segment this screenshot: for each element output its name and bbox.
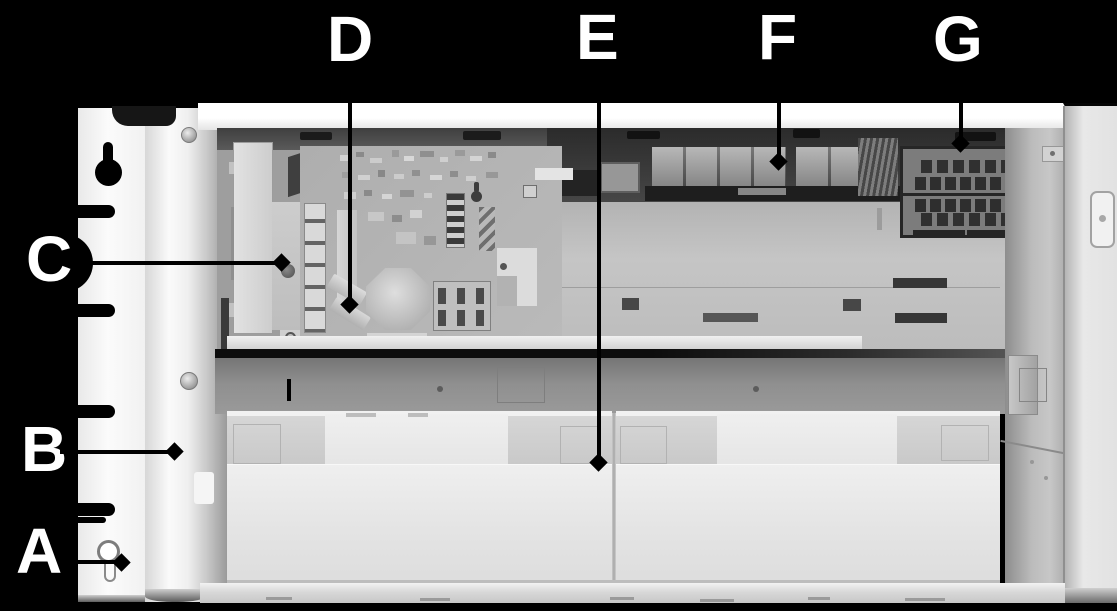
leader-line-g [959,70,963,139]
leader-line-c [86,261,277,265]
leader-line-b [60,450,170,454]
callout-letter-d: D [327,7,373,71]
callout-letter-e: E [576,5,619,69]
leader-line-d [348,68,352,300]
callout-letter-a: A [16,519,62,583]
diamond-marker-e [589,453,607,471]
diamond-marker-a [112,553,130,571]
callout-letter-f: F [758,5,797,69]
leader-line-a [58,560,118,564]
diamond-marker-g [951,134,969,152]
diamond-marker-d [340,295,358,313]
equipment-callout-diagram: A B C D E F G [0,0,1117,611]
callout-layer: A B C D E F G [0,0,1117,611]
callout-letter-c: C [26,227,72,291]
callout-letter-b: B [21,417,67,481]
diamond-marker-f [769,152,787,170]
diamond-marker-b [165,442,183,460]
diamond-marker-c [272,253,290,271]
leader-line-e [597,66,601,458]
callout-letter-g: G [933,7,983,71]
leader-line-f [777,66,781,157]
